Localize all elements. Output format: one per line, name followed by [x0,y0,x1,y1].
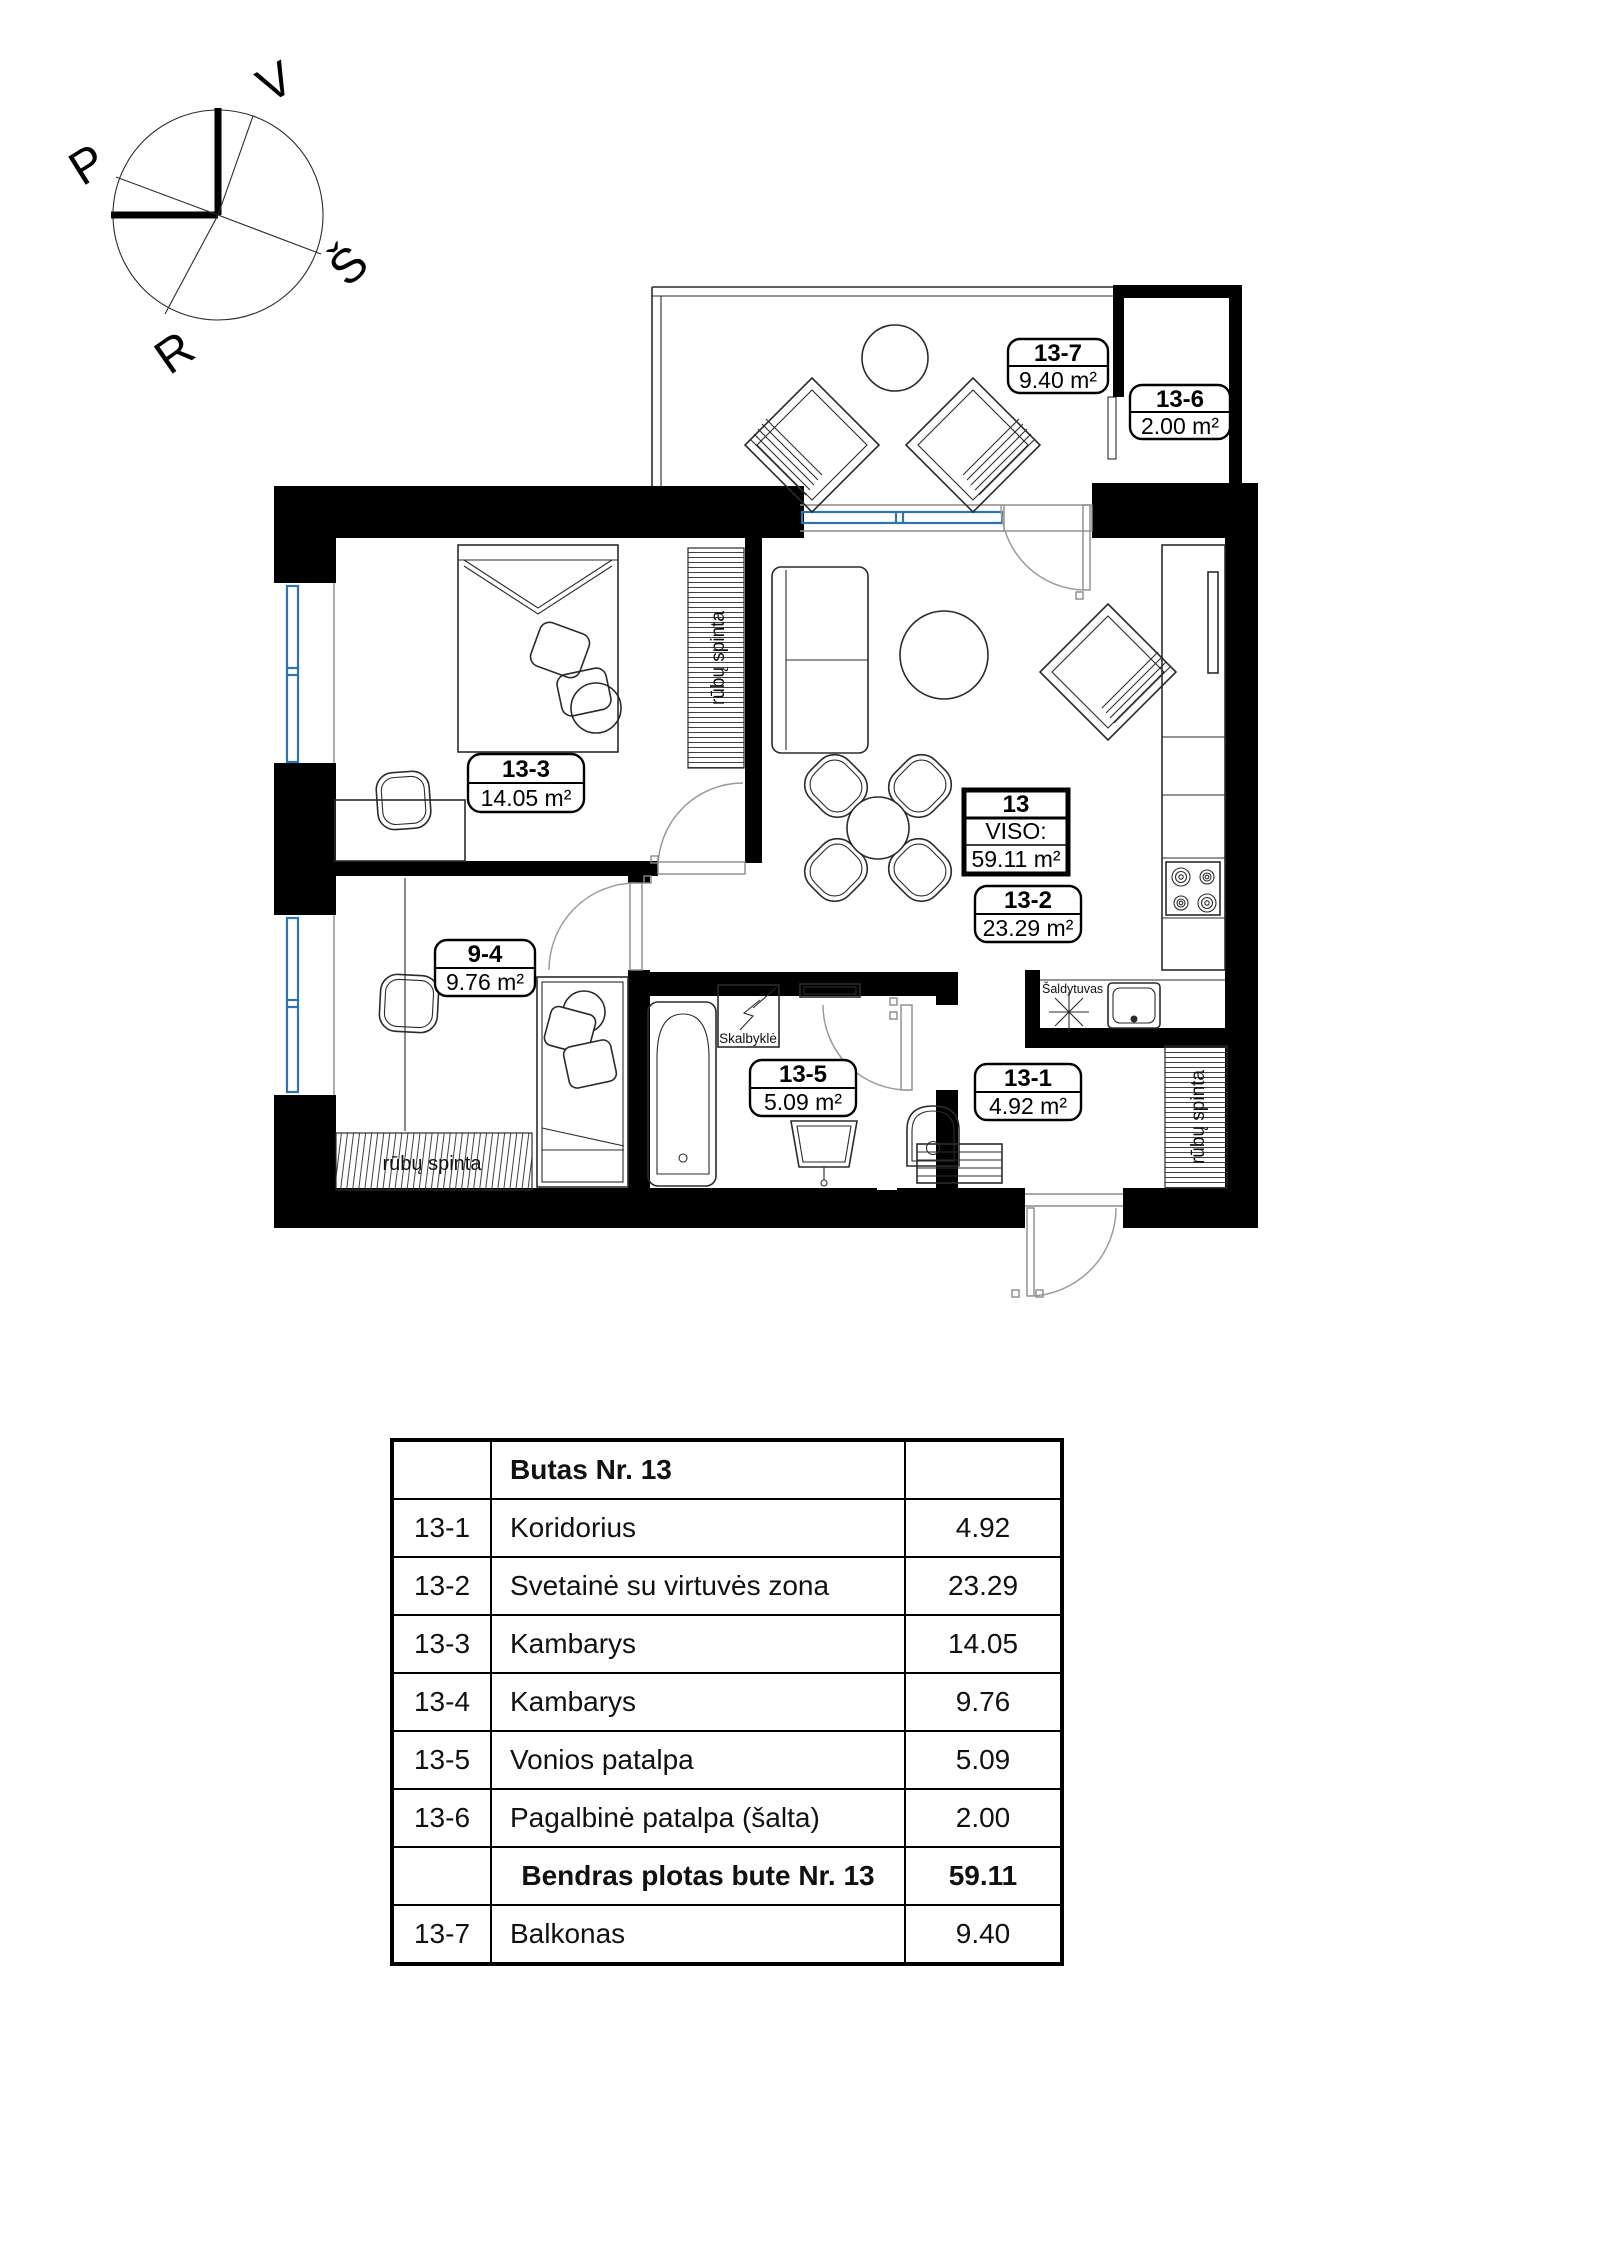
room94-chair [379,974,440,1034]
wall-bedroom-living [745,538,762,863]
room94-wardrobe-label: rūbų spinta [383,1153,483,1175]
compass-rose: V P Š R [60,52,378,385]
total-area: 59.11 m² [971,846,1060,872]
kitchen-tall-unit [1208,572,1218,673]
room-label-13-5: 13-5 5.09 m² [750,1060,856,1116]
area-table: Butas Nr. 13 13-1 Koridorius 4.92 13-2 S… [390,1438,1064,1966]
compass-letter-r: R [145,322,204,385]
bedroom-wardrobe: rūbų spinta [688,548,744,768]
svg-text:9-4: 9-4 [468,941,503,968]
wall-top [274,486,804,538]
svg-text:13-5: 13-5 [779,1061,827,1088]
room-label-13-2: 13-2 23.29 m² [975,886,1081,942]
bathtub [648,1002,716,1186]
hall-wardrobe: rūbų spinta [1165,1046,1227,1188]
kitchen-sink [1108,983,1160,1028]
room94-door [549,876,651,970]
bedroom-desk [335,800,465,861]
table-row: 13-1 Koridorius 4.92 [394,1498,1060,1556]
living-room-window [800,505,1004,531]
table-row: 13-3 Kambarys 14.05 [394,1614,1060,1672]
svg-text:13-7: 13-7 [1034,340,1082,367]
apartment-number: 13 [1003,791,1030,818]
wall-room94-bath [628,970,650,1188]
room-label-13-3: 13-3 14.05 m² [468,754,584,812]
wall-right [1225,538,1258,1188]
coffee-table [900,611,988,699]
room-labels: 13-7 9.40 m² 13-6 2.00 m² 13-3 14.05 m² … [435,339,1230,1120]
table-row: 13-4 Kambarys 9.76 [394,1672,1060,1730]
table-row: 13-6 Pagalbinė patalpa (šalta) 2.00 [394,1788,1060,1846]
svg-text:14.05 m²: 14.05 m² [481,785,572,811]
balcony-furniture [745,325,1040,512]
wall-stub-room94 [628,861,650,883]
wall-top-right [1092,483,1258,538]
sofa [772,567,868,753]
compass-letter-v: V [249,52,302,114]
double-bed [458,545,621,752]
bedroom-wardrobe-label: rūbų spinta [708,611,729,705]
table-row: 13-5 Vonios patalpa 5.09 [394,1730,1060,1788]
floor-plan-page: V P Š R [0,0,1600,2264]
table-row-total: Bendras plotas bute Nr. 13 59.11 [394,1846,1060,1904]
room-label-13-6: 13-6 2.00 m² [1130,385,1230,439]
svg-text:4.92 m²: 4.92 m² [989,1093,1067,1119]
table-row: 13-2 Svetainė su virtuvės zona 23.29 [394,1556,1060,1614]
svg-text:13-6: 13-6 [1156,386,1204,413]
wall-niche-bottom [1025,1028,1225,1048]
stove [1166,862,1220,915]
svg-text:13-1: 13-1 [1004,1065,1052,1092]
living-lounge-chair [1040,604,1176,740]
total-area-box: 13 VISO: 59.11 m² [964,790,1068,874]
table-row: Butas Nr. 13 [394,1442,1060,1498]
wall-coldroom-top [1113,285,1242,298]
balcony-door [1001,505,1092,599]
room94-furniture: rūbų spinta [336,878,628,1190]
washer-label: Skalbyklė [719,1031,777,1046]
room-label-13-1: 13-1 4.92 m² [975,1064,1081,1120]
balcony-table [862,325,928,391]
svg-text:13-2: 13-2 [1004,887,1052,914]
wall-coldroom-right [1229,285,1242,490]
fridge-label: Šaldytuvas [1042,981,1103,996]
room94-wardrobe: rūbų spinta [336,1133,532,1190]
compass-letter-p: P [60,134,115,196]
fridge-symbol [1049,992,1089,1032]
balcony-side-glazing [1108,397,1116,459]
table-title: Butas Nr. 13 [490,1442,904,1498]
hall-wardrobe-label: rūbų spinta [1188,1070,1209,1164]
svg-text:5.09 m²: 5.09 m² [764,1089,842,1115]
svg-text:13-3: 13-3 [502,756,550,783]
fridge-niche: Šaldytuvas [1040,980,1225,1032]
svg-text:9.40 m²: 9.40 m² [1019,367,1097,393]
room-label-13-7: 13-7 9.40 m² [1008,339,1108,393]
wall-coldroom-left [1113,285,1124,397]
svg-text:2.00 m²: 2.00 m² [1141,413,1219,439]
dining-table [847,797,909,859]
dining-set [796,746,959,909]
compass-letter-s: Š [319,235,379,297]
wall-bedroom-room94 [336,861,658,876]
bedroom-door [651,783,745,874]
room-label-9-4: 9-4 9.76 m² [435,940,535,996]
bath-sink [791,1121,857,1186]
bedroom-furniture: rūbų spinta [335,545,744,861]
single-bed [537,977,628,1187]
table-row: 13-7 Balkonas 9.40 [394,1904,1060,1962]
total-caption: VISO: [985,818,1046,844]
balcony-lounge-chair-right [906,378,1040,512]
svg-text:23.29 m²: 23.29 m² [983,915,1074,941]
svg-text:9.76 m²: 9.76 m² [446,969,524,995]
